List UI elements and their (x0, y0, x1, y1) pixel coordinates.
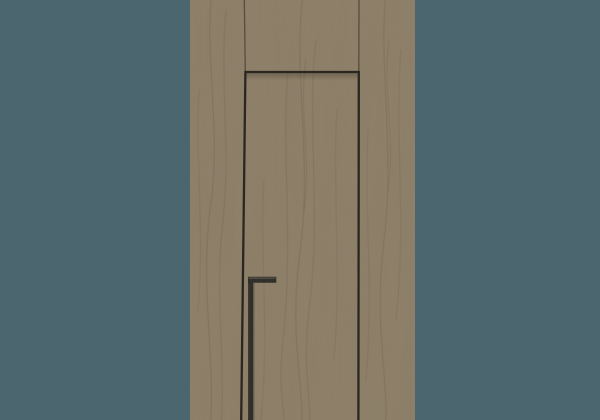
door-top-shadow (246, 73, 357, 80)
handle-shadow (253, 283, 255, 420)
product-stage (0, 0, 600, 420)
handle-edge-highlight (248, 284, 249, 419)
wood-panel (190, 0, 415, 420)
handle-top-highlight (249, 277, 276, 279)
door-render (0, 0, 600, 420)
